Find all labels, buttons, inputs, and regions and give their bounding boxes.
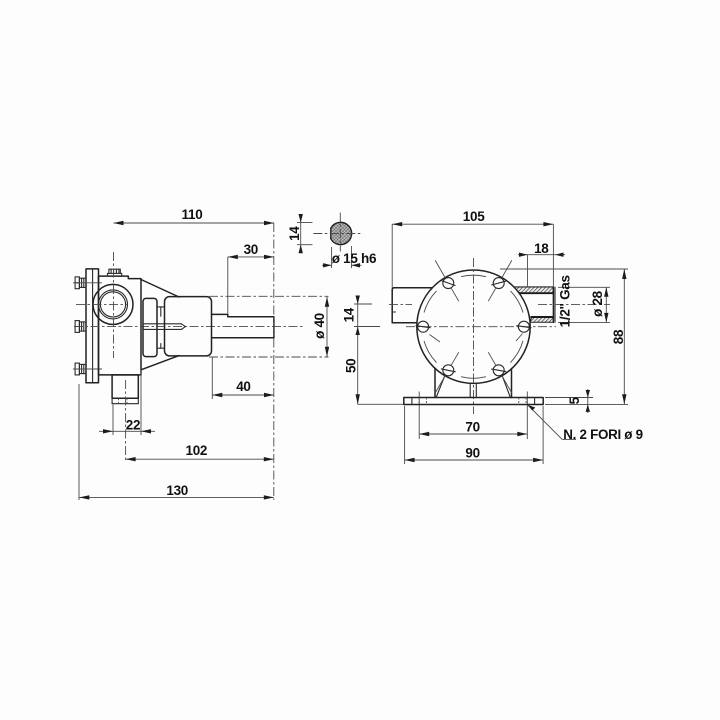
svg-text:88: 88 xyxy=(611,329,626,344)
svg-text:22: 22 xyxy=(126,418,140,433)
svg-text:110: 110 xyxy=(182,207,203,222)
svg-text:18: 18 xyxy=(534,241,549,256)
svg-text:14: 14 xyxy=(342,307,357,322)
svg-text:ø 15 h6: ø 15 h6 xyxy=(332,251,377,266)
svg-text:130: 130 xyxy=(166,483,188,498)
svg-text:40: 40 xyxy=(236,379,250,394)
svg-text:1/2" Gas: 1/2" Gas xyxy=(558,275,573,327)
svg-text:90: 90 xyxy=(465,446,479,461)
svg-text:50: 50 xyxy=(343,359,358,373)
svg-text:N. 2 FORI ø 9: N. 2 FORI ø 9 xyxy=(563,427,642,442)
svg-text:30: 30 xyxy=(244,242,258,257)
svg-text:102: 102 xyxy=(185,443,207,458)
svg-text:ø 28: ø 28 xyxy=(590,290,605,317)
svg-text:105: 105 xyxy=(463,209,485,224)
svg-text:ø 40: ø 40 xyxy=(312,313,327,339)
svg-text:70: 70 xyxy=(465,420,479,435)
svg-text:14: 14 xyxy=(287,226,302,241)
svg-text:5: 5 xyxy=(567,396,582,404)
